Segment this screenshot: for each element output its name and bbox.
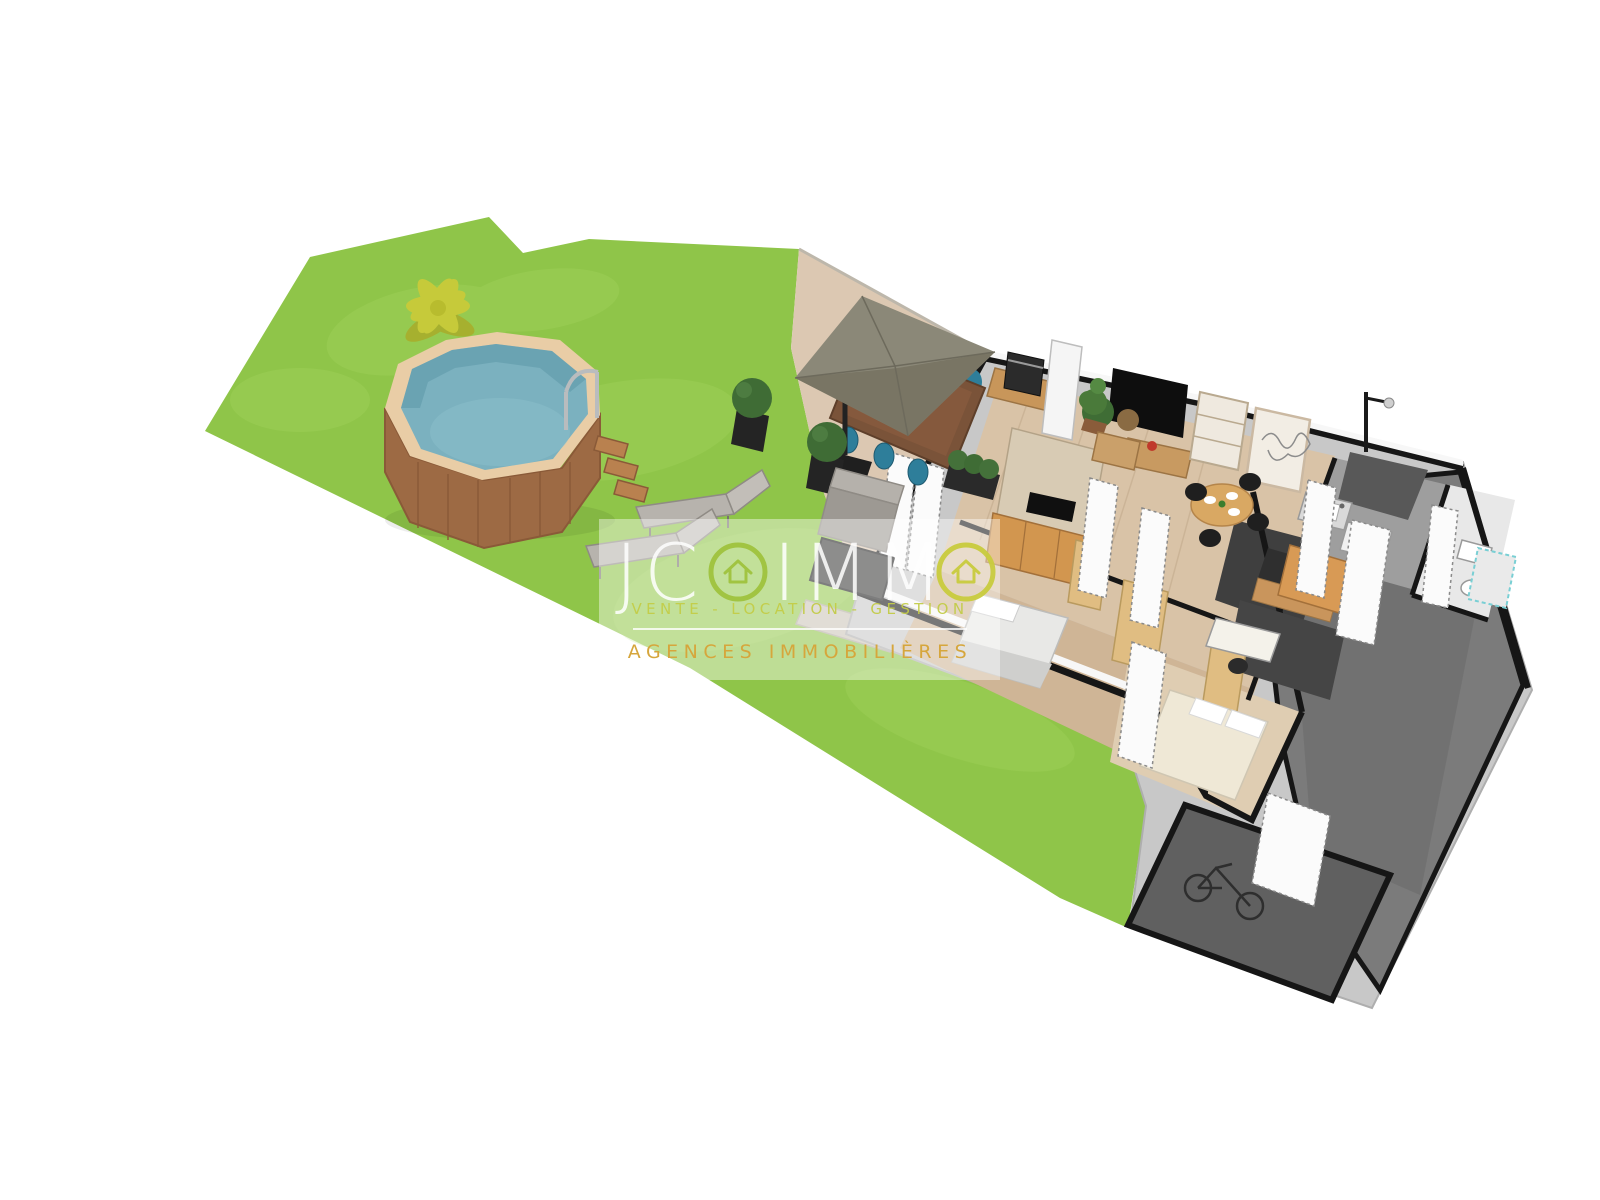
plate — [1204, 496, 1216, 504]
floorplan-render: JC IMM VENTE - LOCATION - GESTION AGENCE… — [0, 0, 1600, 1200]
dining-chair — [1185, 483, 1207, 501]
dining-chair — [1247, 513, 1269, 531]
desk-chair — [1228, 658, 1248, 674]
plate — [1228, 508, 1240, 516]
kitchen-faucet — [1340, 504, 1345, 509]
plate — [1226, 492, 1238, 500]
watermark-tagline: VENTE - LOCATION - GESTION — [632, 600, 969, 618]
shower-arm — [1366, 398, 1386, 402]
scene-canvas: JC IMM VENTE - LOCATION - GESTION AGENCE… — [0, 0, 1600, 1200]
bottle — [1219, 501, 1226, 508]
wicker-decor — [1117, 409, 1139, 431]
watermark-subtitle: AGENCES IMMOBILIÈRES — [628, 640, 972, 663]
red-decor — [1147, 441, 1157, 451]
shower-head — [1384, 398, 1394, 408]
shelving-unit — [1190, 392, 1248, 470]
watermark: JC IMM VENTE - LOCATION - GESTION AGENCE… — [599, 519, 1000, 680]
dining-chair — [1199, 529, 1221, 547]
bbq-grill — [1004, 352, 1044, 396]
pool-water-highlight — [430, 398, 570, 466]
